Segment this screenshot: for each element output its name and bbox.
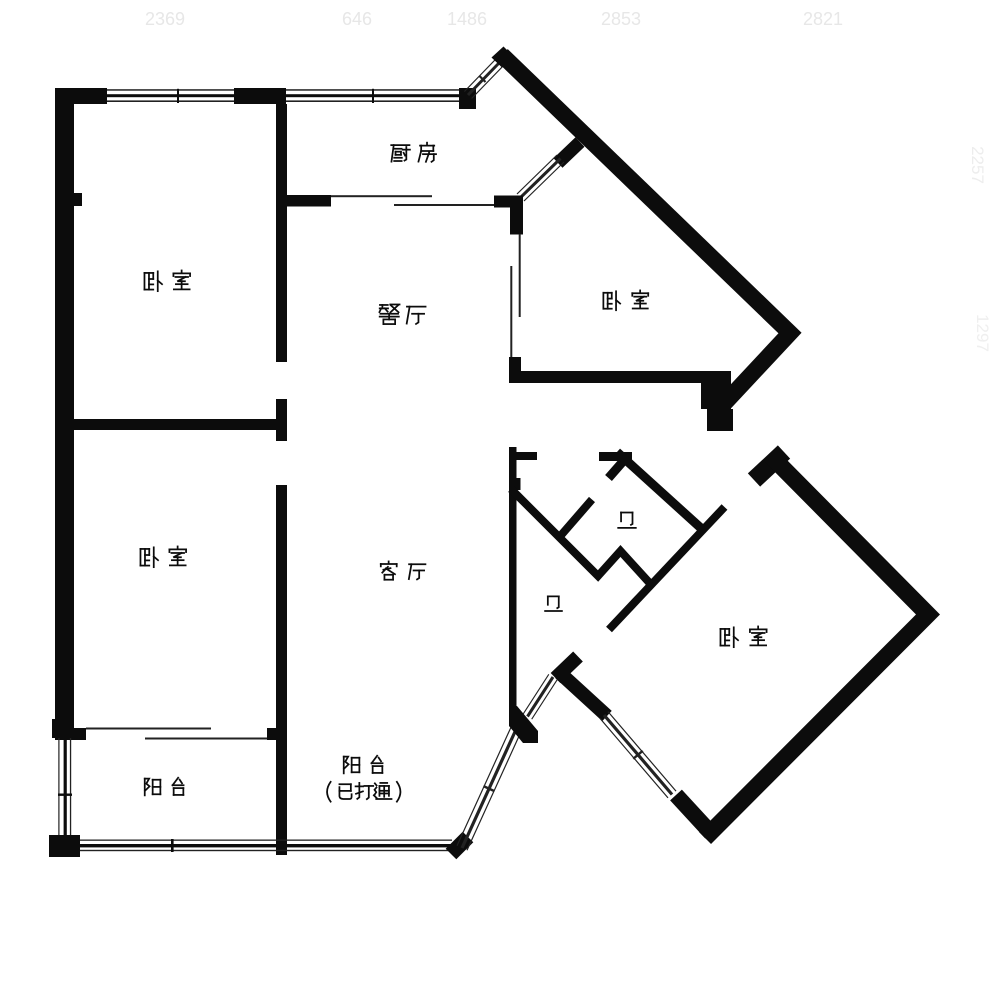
svg-text:2853: 2853 xyxy=(601,9,641,29)
svg-text:1297: 1297 xyxy=(973,314,992,352)
svg-text:1486: 1486 xyxy=(447,9,487,29)
svg-text:2369: 2369 xyxy=(145,9,185,29)
svg-text:2821: 2821 xyxy=(803,9,843,29)
svg-text:646: 646 xyxy=(342,9,372,29)
svg-text:2257: 2257 xyxy=(968,146,987,184)
